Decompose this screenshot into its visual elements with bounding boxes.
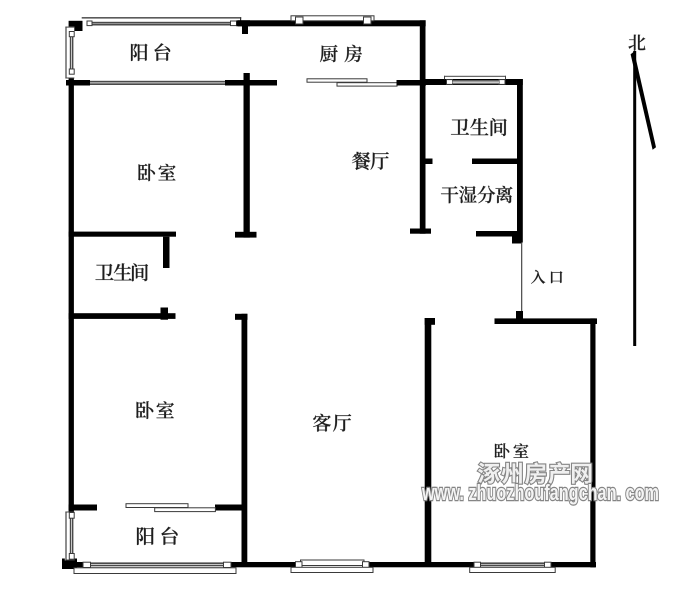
svg-text:www. zhuozhoufangchan. com: www. zhuozhoufangchan. com — [421, 480, 659, 505]
